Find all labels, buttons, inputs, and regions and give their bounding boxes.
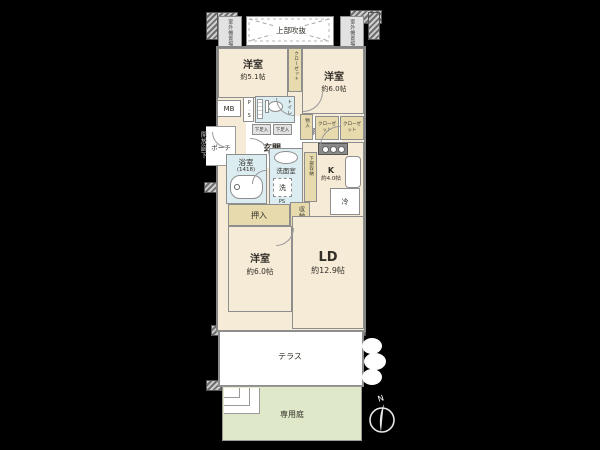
washroom-label: 洗面室 [271, 167, 301, 175]
burner-icon [338, 146, 345, 153]
pipe-space-1-label: P.S [246, 100, 252, 120]
terrace-label: テラス [268, 352, 312, 362]
closet-b-box: クローゼット [340, 116, 364, 140]
closet-top-label: クローゼット [293, 51, 299, 81]
private-garden-label: 専用庭 [268, 410, 316, 420]
hatch-top-right-side [368, 12, 380, 40]
floor-plan-canvas: 室外機置場 室外機置場 上部吹抜 洋室 約5.1帖 クローゼット 洋室 約6.0… [0, 0, 600, 450]
refrigerator-box: 冷 [330, 188, 360, 215]
outdoor-unit-left-label: 室外機置場 [227, 19, 233, 47]
monoire-label: 物入 [304, 118, 310, 128]
toilet-shelf [257, 99, 263, 119]
toilet-tank-icon [265, 100, 269, 113]
pipe-space-1: P.S [243, 97, 254, 122]
hatch-top-left-side [206, 12, 218, 40]
lower-storage-label: 下部収納 [308, 156, 314, 176]
garden-step-line [224, 388, 240, 398]
kitchen-name: K [318, 166, 344, 176]
bedroom-60-top-label: 洋室 約6.0帖 [306, 72, 362, 93]
bedroom-60-bottom-name: 洋室 [230, 254, 290, 267]
shoe-box-1-label: 下足入 [253, 128, 270, 134]
outdoor-unit-space-right: 室外機置場 [340, 16, 364, 48]
kitchen-area: 約4.0帖 [318, 176, 344, 183]
kitchen-sink-icon [345, 156, 361, 188]
bedroom-51-name: 洋室 [223, 60, 283, 73]
bush-icon [362, 338, 382, 354]
lower-storage-strip: 下部収納 [304, 152, 317, 202]
living-dining-label: LD 約12.9帖 [296, 250, 360, 276]
bedroom-51-area: 約5.1帖 [223, 73, 283, 82]
closet-top-strip: クローゼット [288, 48, 302, 92]
upper-void: 上部吹抜 [246, 16, 334, 46]
outdoor-unit-space-left: 室外機置場 [218, 16, 242, 48]
open-corridor-label: 開放廊下 [199, 124, 207, 166]
shoe-box-2: 下足入 [273, 124, 292, 135]
oshiire-box: 押入 [228, 204, 290, 226]
shoe-box-2-label: 下足入 [274, 128, 291, 134]
washbasin-icon [274, 151, 298, 164]
kitchen-label: K 約4.0帖 [318, 166, 344, 183]
washer-label: 洗 [274, 184, 291, 193]
closet-b-label: クローゼット [342, 122, 362, 133]
bedroom-51-label: 洋室 約5.1帖 [223, 60, 283, 81]
bedroom-60-bottom-area: 約6.0帖 [230, 267, 290, 276]
bedroom-60-top-name: 洋室 [306, 72, 362, 85]
oshiire-label: 押入 [229, 211, 289, 221]
refrigerator-label: 冷 [331, 198, 359, 207]
washer-space: 洗 [273, 178, 292, 197]
compass: N [366, 394, 400, 436]
outdoor-unit-right-label: 室外機置場 [349, 19, 355, 47]
monoire-box: 物入 [300, 114, 313, 140]
burner-icon [330, 146, 337, 153]
burner-icon [322, 146, 329, 153]
bathroom-name: 浴室 [228, 158, 264, 167]
bush-icon [364, 353, 386, 370]
compass-rose-icon [367, 403, 397, 435]
living-dining-name: LD [296, 250, 360, 266]
shoe-box-1: 下足入 [252, 124, 271, 135]
door-arc [266, 96, 267, 97]
meter-box-label: MB [218, 105, 240, 114]
garden-steps [224, 388, 260, 414]
bush-icon [362, 369, 382, 385]
upper-void-label: 上部吹抜 [269, 26, 313, 35]
bedroom-60-bottom-label: 洋室 約6.0帖 [230, 254, 290, 276]
bathtub-drain-icon [234, 184, 240, 190]
meter-box: MB [217, 100, 241, 117]
living-dining-area: 約12.9帖 [296, 266, 360, 276]
